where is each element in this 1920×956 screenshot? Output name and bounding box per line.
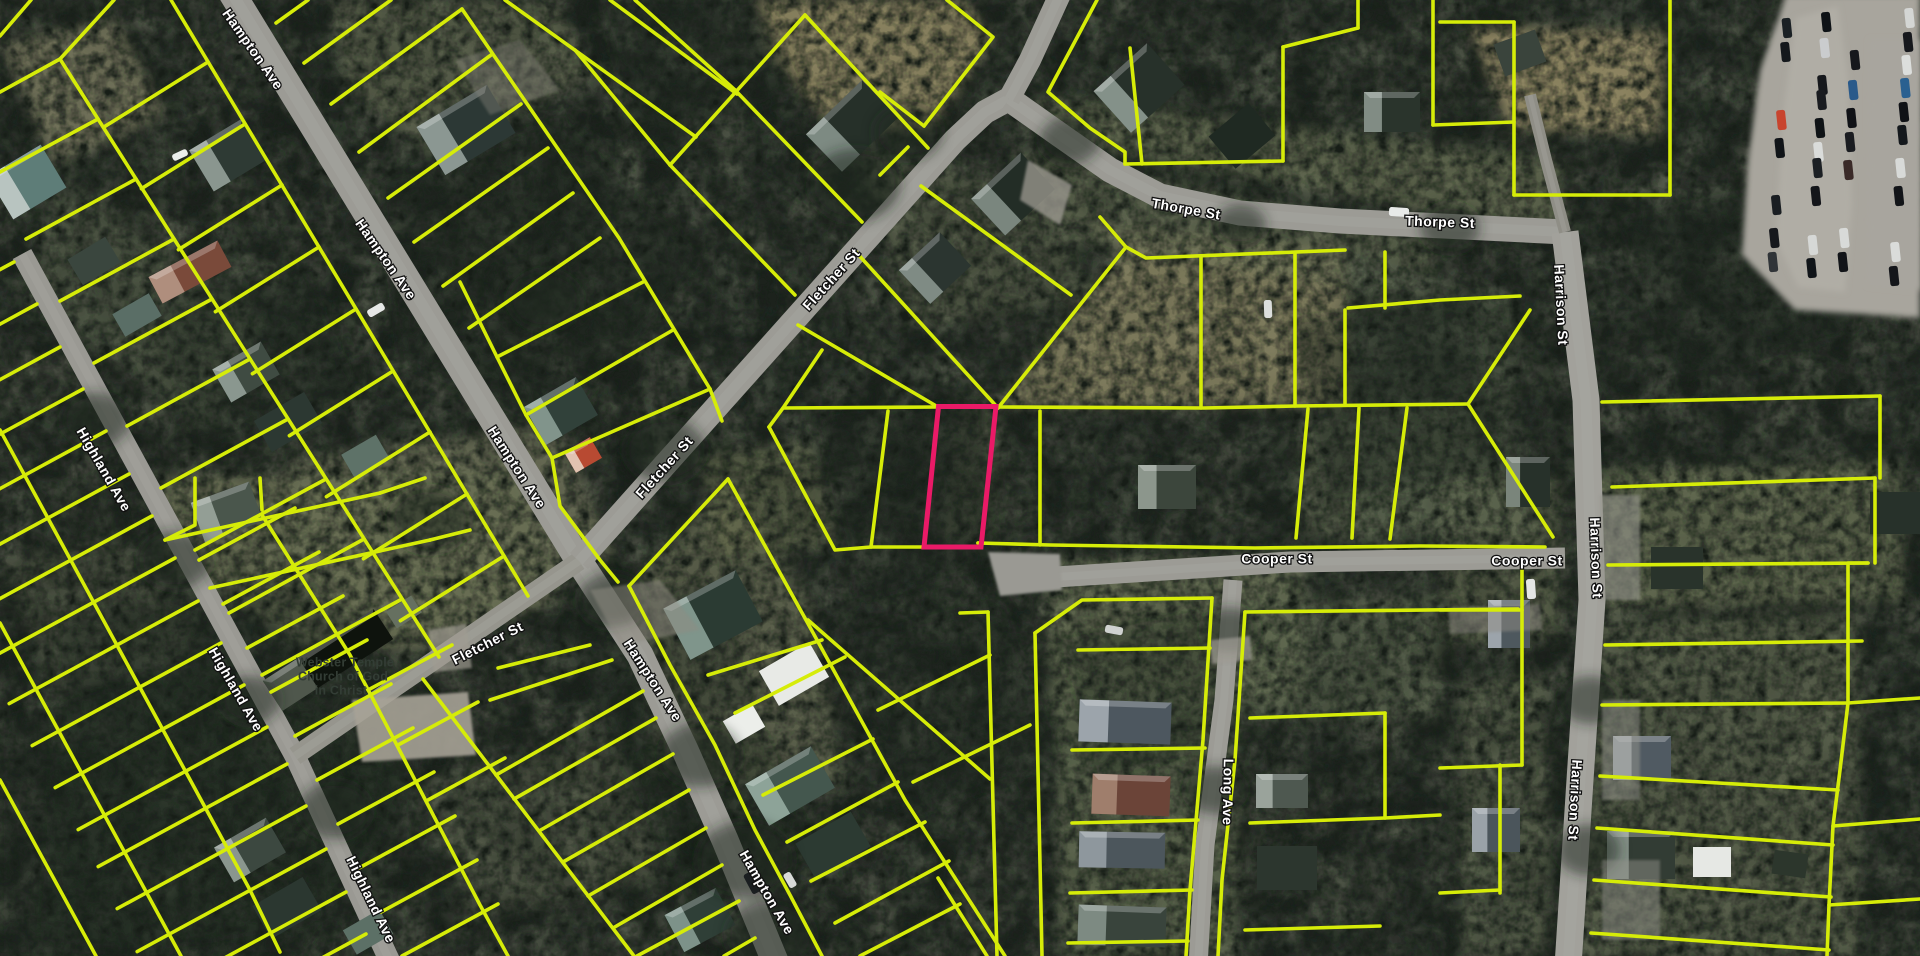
svg-text:Cooper St: Cooper St <box>1491 553 1562 569</box>
svg-text:Cooper St: Cooper St <box>1241 551 1312 567</box>
svg-text:Church of God: Church of God <box>298 669 388 683</box>
svg-text:Webster Temple: Webster Temple <box>296 655 394 669</box>
svg-text:Thorpe St: Thorpe St <box>1405 212 1475 230</box>
svg-text:Long Ave: Long Ave <box>1220 759 1237 826</box>
svg-text:Harrison St: Harrison St <box>1587 517 1606 598</box>
svg-text:in Christ: in Christ <box>315 683 368 697</box>
